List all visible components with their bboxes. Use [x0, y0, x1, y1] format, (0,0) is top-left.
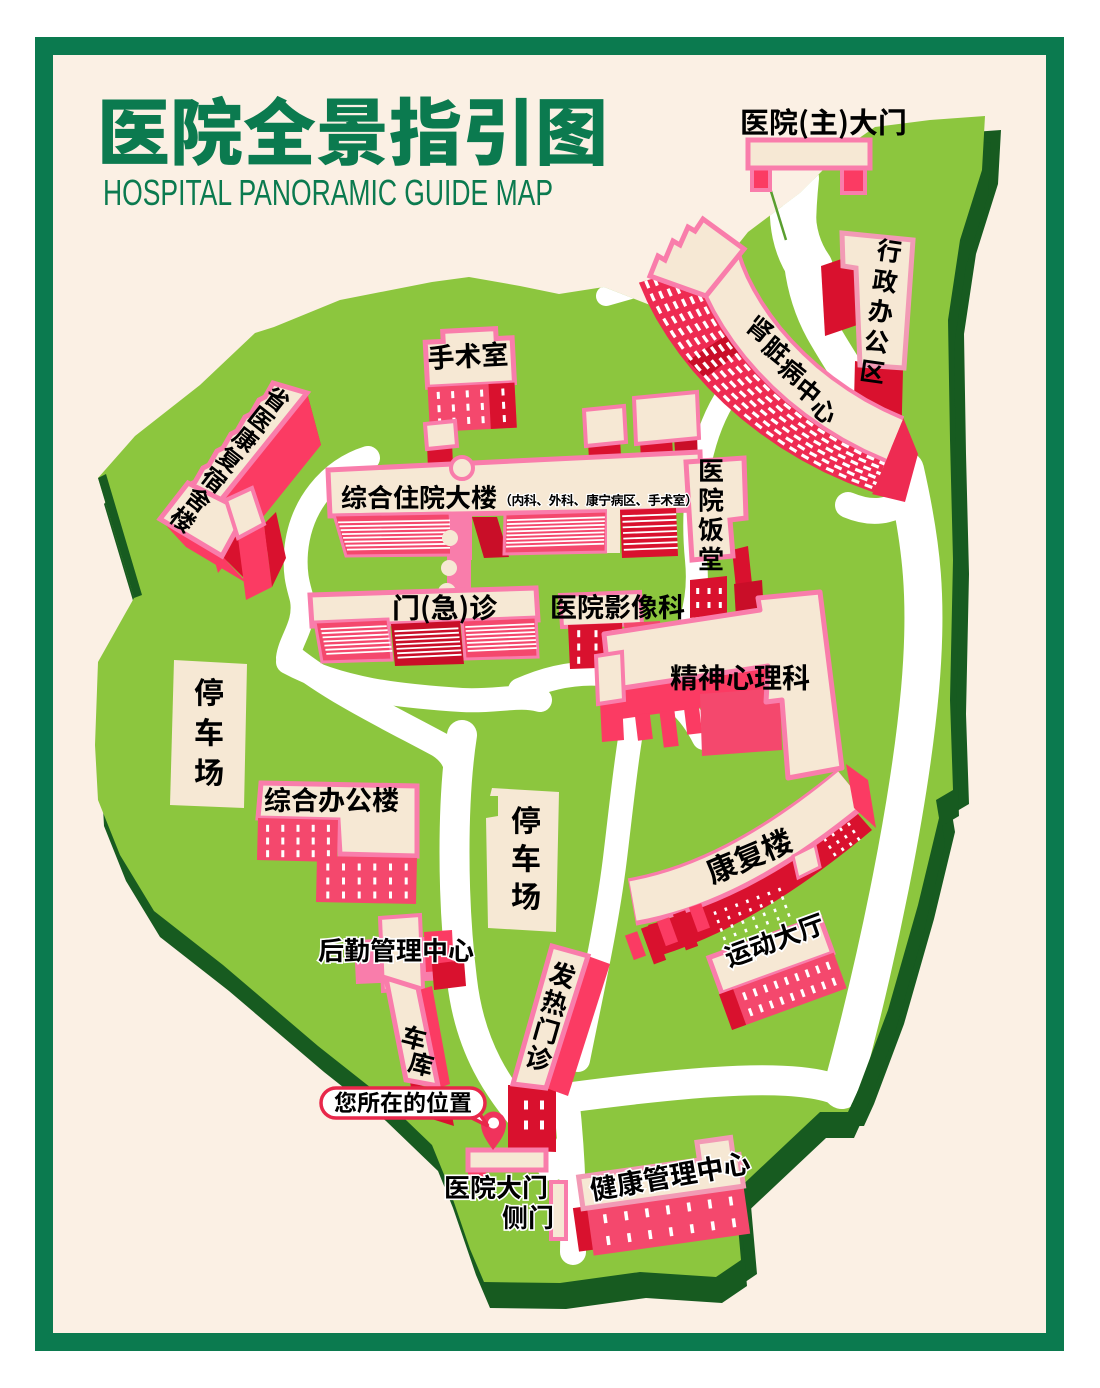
svg-text:HOSPITAL PANORAMIC GUIDE MAP: HOSPITAL PANORAMIC GUIDE MAP — [103, 172, 553, 213]
